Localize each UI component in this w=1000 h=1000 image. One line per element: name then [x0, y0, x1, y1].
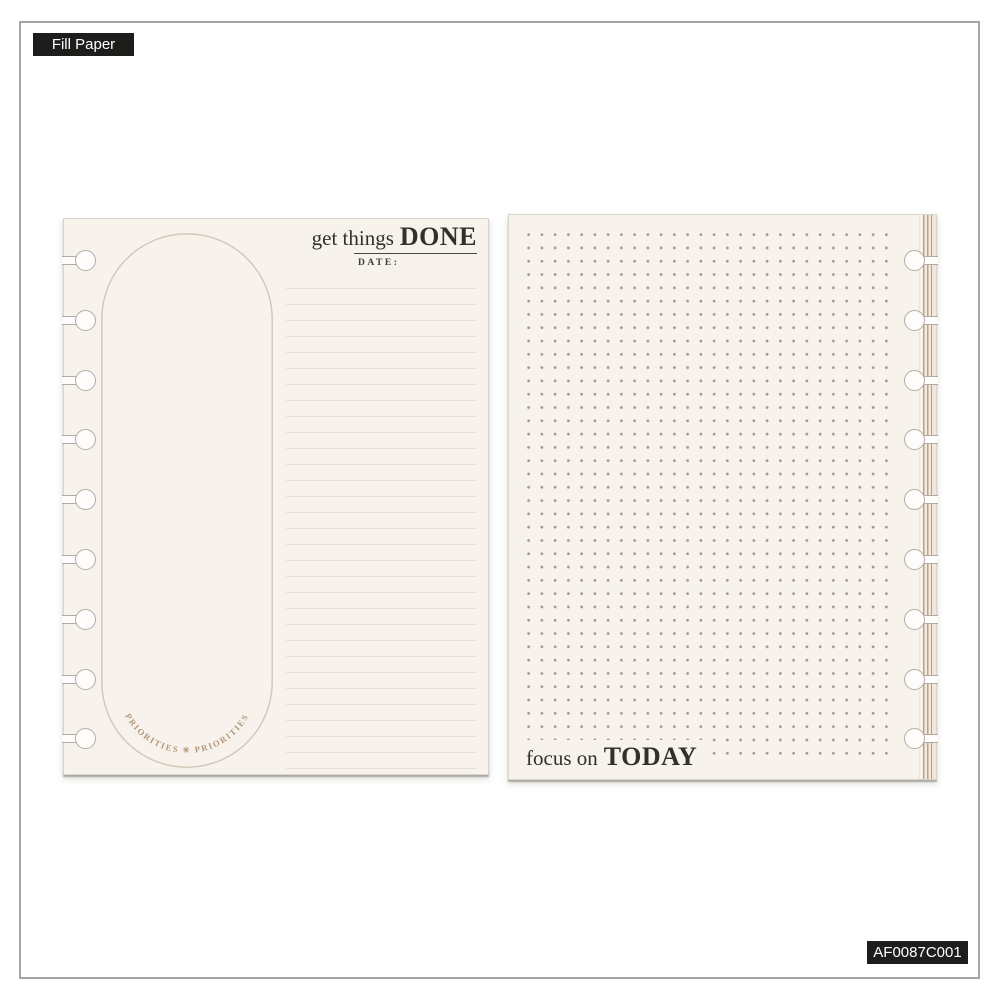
ruled-lines [286, 273, 477, 770]
page-stack-edge [919, 215, 936, 779]
disc-punch-hole [62, 727, 98, 750]
page-title-emphasis: DONE [400, 222, 477, 251]
disc-punch-hole [62, 608, 98, 631]
date-label: DATE: [358, 258, 399, 268]
disc-punch-hole [62, 369, 98, 392]
disc-punch-hole [62, 668, 98, 691]
disc-punch-hole [62, 249, 98, 272]
dot-grid [522, 228, 894, 762]
priorities-oval: PRIORITIES ✳ PRIORITIES [101, 233, 273, 768]
priorities-arc-label: PRIORITIES ✳ PRIORITIES [123, 712, 251, 755]
product-image: Fill Paper get thingsDONE DATE: PRIORITI… [0, 0, 1000, 1000]
title-underline [354, 253, 477, 254]
product-sku-badge: AF0087C001 [867, 941, 968, 964]
disc-punch-hole [62, 428, 98, 451]
page-title: get thingsDONE [312, 222, 477, 252]
page-title-prefix: get things [312, 226, 394, 250]
footer-emphasis: TODAY [604, 742, 698, 771]
page-footer: focus onTODAY [523, 740, 705, 772]
oval-outline [102, 234, 272, 767]
dot-grid-sheet: focus onTODAY [508, 214, 937, 780]
priorities-todo-sheet: get thingsDONE DATE: PRIORITIES ✳ PRIORI… [63, 218, 489, 775]
footer-prefix: focus on [526, 746, 598, 770]
disc-punch-hole [62, 548, 98, 571]
product-type-badge: Fill Paper [33, 33, 134, 56]
disc-punch-hole [62, 488, 98, 511]
disc-punch-hole [62, 309, 98, 332]
